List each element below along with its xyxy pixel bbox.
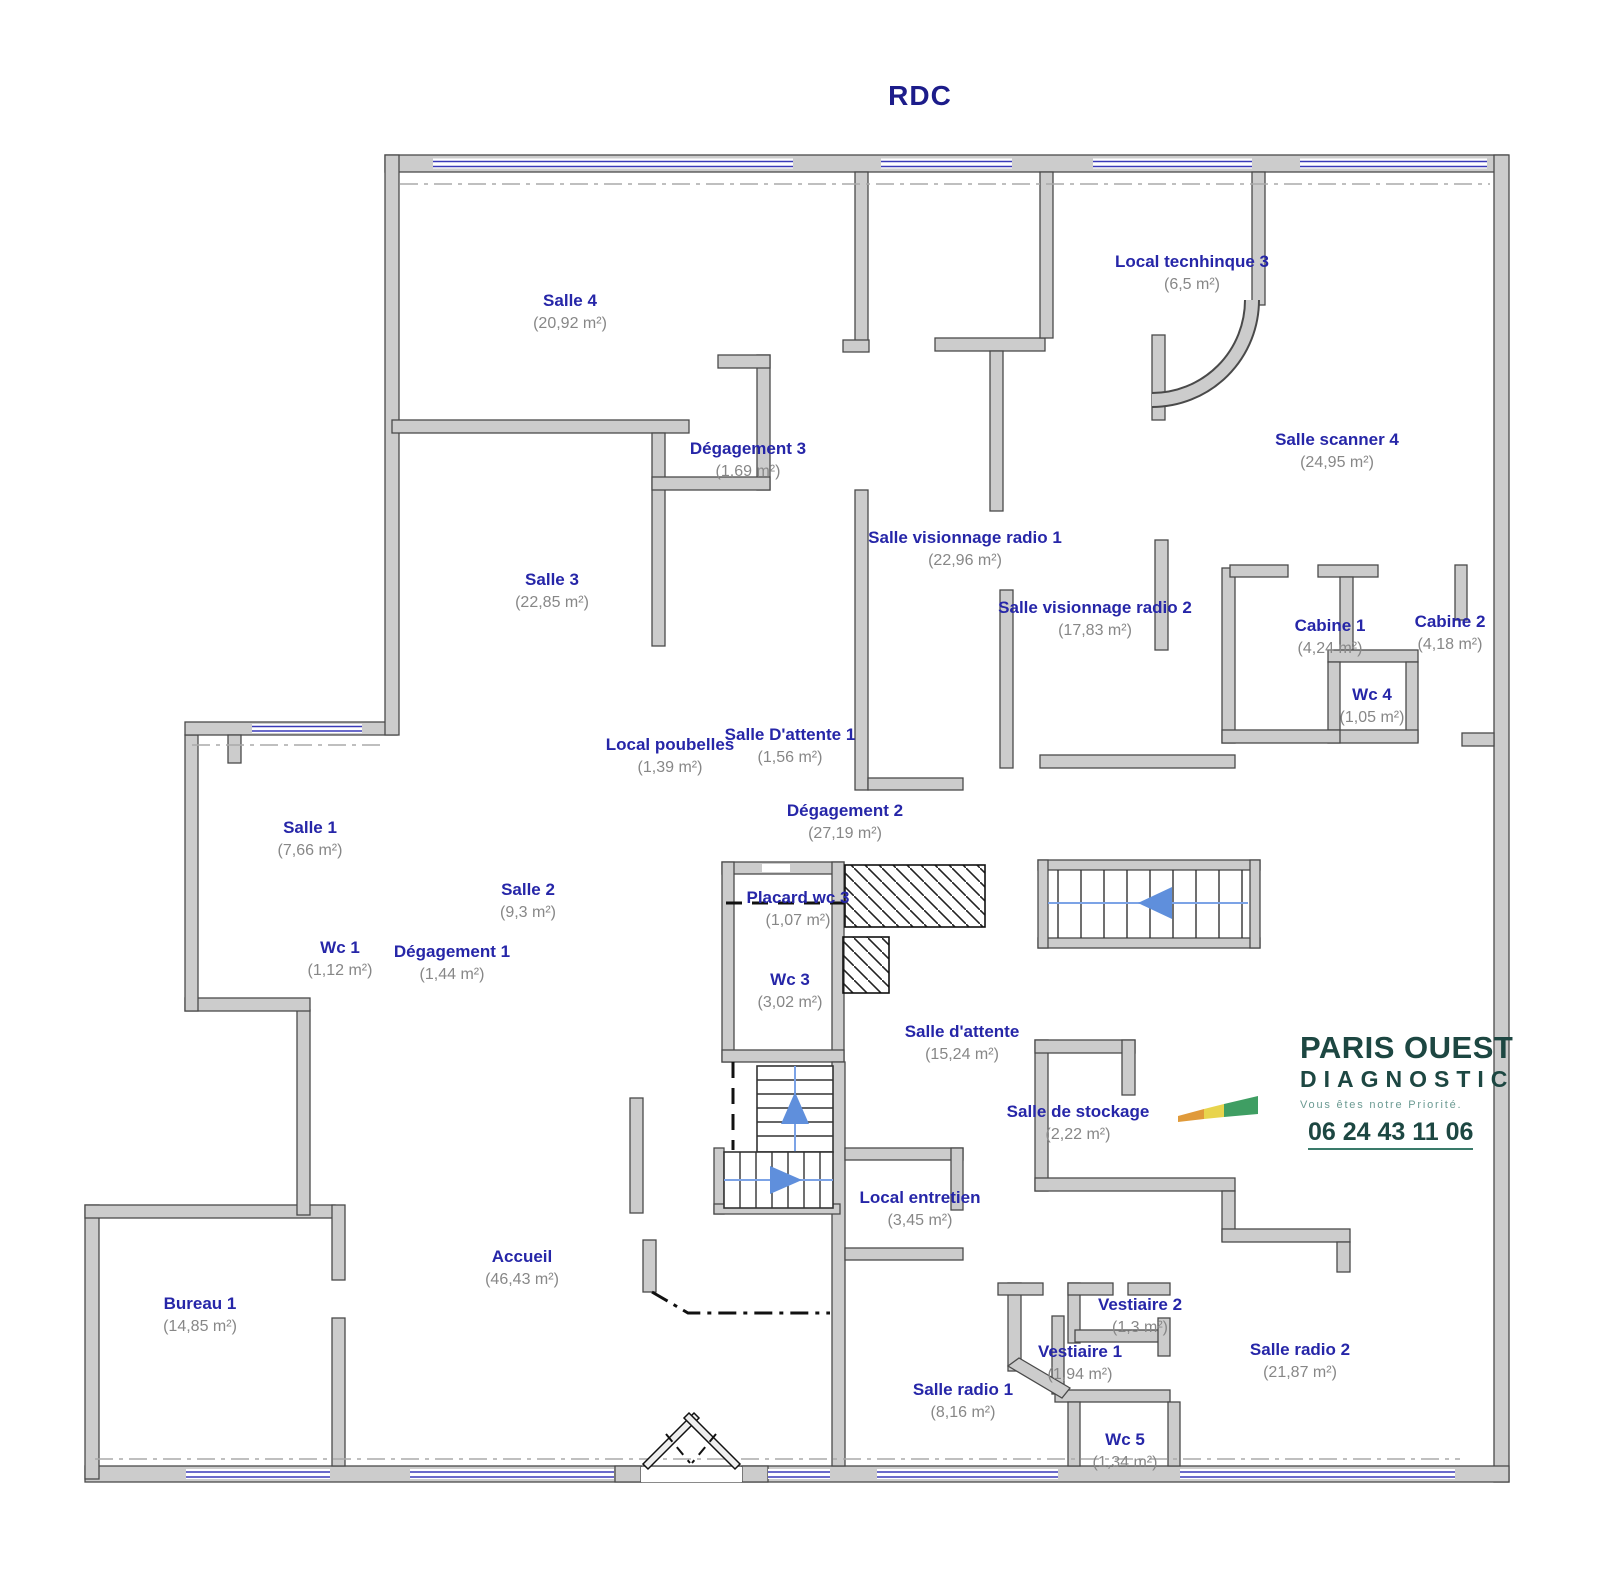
room-label-salle-3: Salle 3(22,85 m²)	[515, 568, 589, 614]
logo-phone-number: 06 24 43 11 06	[1308, 1118, 1473, 1150]
room-label-degagement-3: Dégagement 3(1,69 m²)	[690, 437, 806, 483]
room-label-wc-3: Wc 3(3,02 m²)	[758, 968, 823, 1014]
room-label-wc-5: Wc 5(1,34 m²)	[1093, 1428, 1158, 1474]
room-label-cabine-2: Cabine 2(4,18 m²)	[1415, 610, 1486, 656]
floor-plan-page: RDC Salle 4(20,92 m²) Local tecnhinque 3…	[0, 0, 1600, 1589]
room-label-salle-radio-2: Salle radio 2(21,87 m²)	[1250, 1338, 1350, 1384]
room-label-salle-4: Salle 4(20,92 m²)	[533, 289, 607, 335]
room-label-salle-radio-1: Salle radio 1(8,16 m²)	[913, 1378, 1013, 1424]
room-label-salle-2: Salle 2(9,3 m²)	[500, 878, 556, 924]
room-label-salle-visionnage-radio-2: Salle visionnage radio 2(17,83 m²)	[998, 596, 1192, 642]
room-label-placard-wc-3: Placard wc 3(1,07 m²)	[746, 886, 849, 932]
room-label-bureau-1: Bureau 1(14,85 m²)	[163, 1292, 237, 1338]
room-label-salle-visionnage-radio-1: Salle visionnage radio 1(22,96 m²)	[868, 526, 1062, 572]
room-label-local-entretien: Local entretien(3,45 m²)	[860, 1186, 981, 1232]
room-label-salle-d-attente-1: Salle D'attente 1(1,56 m²)	[725, 723, 856, 769]
room-label-salle-1: Salle 1(7,66 m²)	[278, 816, 343, 862]
page-title: RDC	[888, 80, 952, 112]
room-label-accueil: Accueil(46,43 m²)	[485, 1245, 559, 1291]
room-label-salle-de-stockage: Salle de stockage(2,22 m²)	[1007, 1100, 1150, 1146]
wall-notch	[762, 864, 790, 872]
room-label-local-tecnhinque-3: Local tecnhinque 3(6,5 m²)	[1115, 250, 1269, 296]
room-label-cabine-1: Cabine 1(4,24 m²)	[1295, 614, 1366, 660]
hatched-zones	[843, 865, 985, 993]
room-label-wc-1: Wc 1(1,12 m²)	[308, 936, 373, 982]
room-label-vestiaire-1: Vestiaire 1(1,94 m²)	[1038, 1340, 1122, 1386]
room-label-salle-d-attente: Salle d'attente(15,24 m²)	[905, 1020, 1020, 1066]
logo-brand-line2: DIAGNOSTIC	[1300, 1066, 1514, 1093]
room-label-degagement-1: Dégagement 1(1,44 m²)	[394, 940, 510, 986]
entrance-door	[643, 1413, 740, 1469]
room-label-vestiaire-2: Vestiaire 2(1,3 m²)	[1098, 1293, 1182, 1339]
stair-top-right	[1048, 870, 1248, 938]
room-label-wc-4: Wc 4(1,05 m²)	[1340, 683, 1405, 729]
room-label-degagement-2: Dégagement 2(27,19 m²)	[787, 799, 903, 845]
logo-skyline-icon	[1175, 1052, 1259, 1122]
floor-plan-canvas	[0, 0, 1600, 1589]
entrance-gap	[641, 1467, 742, 1482]
logo-tagline: Vous êtes notre Priorité.	[1300, 1099, 1462, 1111]
logo-brand-line1: PARIS OUEST	[1300, 1030, 1513, 1066]
room-label-salle-scanner-4: Salle scanner 4(24,95 m²)	[1275, 428, 1399, 474]
stair-middle	[724, 1066, 833, 1208]
room-label-local-poubelles: Local poubelles(1,39 m²)	[606, 733, 734, 779]
stair-arrow-left-icon	[1138, 887, 1172, 919]
